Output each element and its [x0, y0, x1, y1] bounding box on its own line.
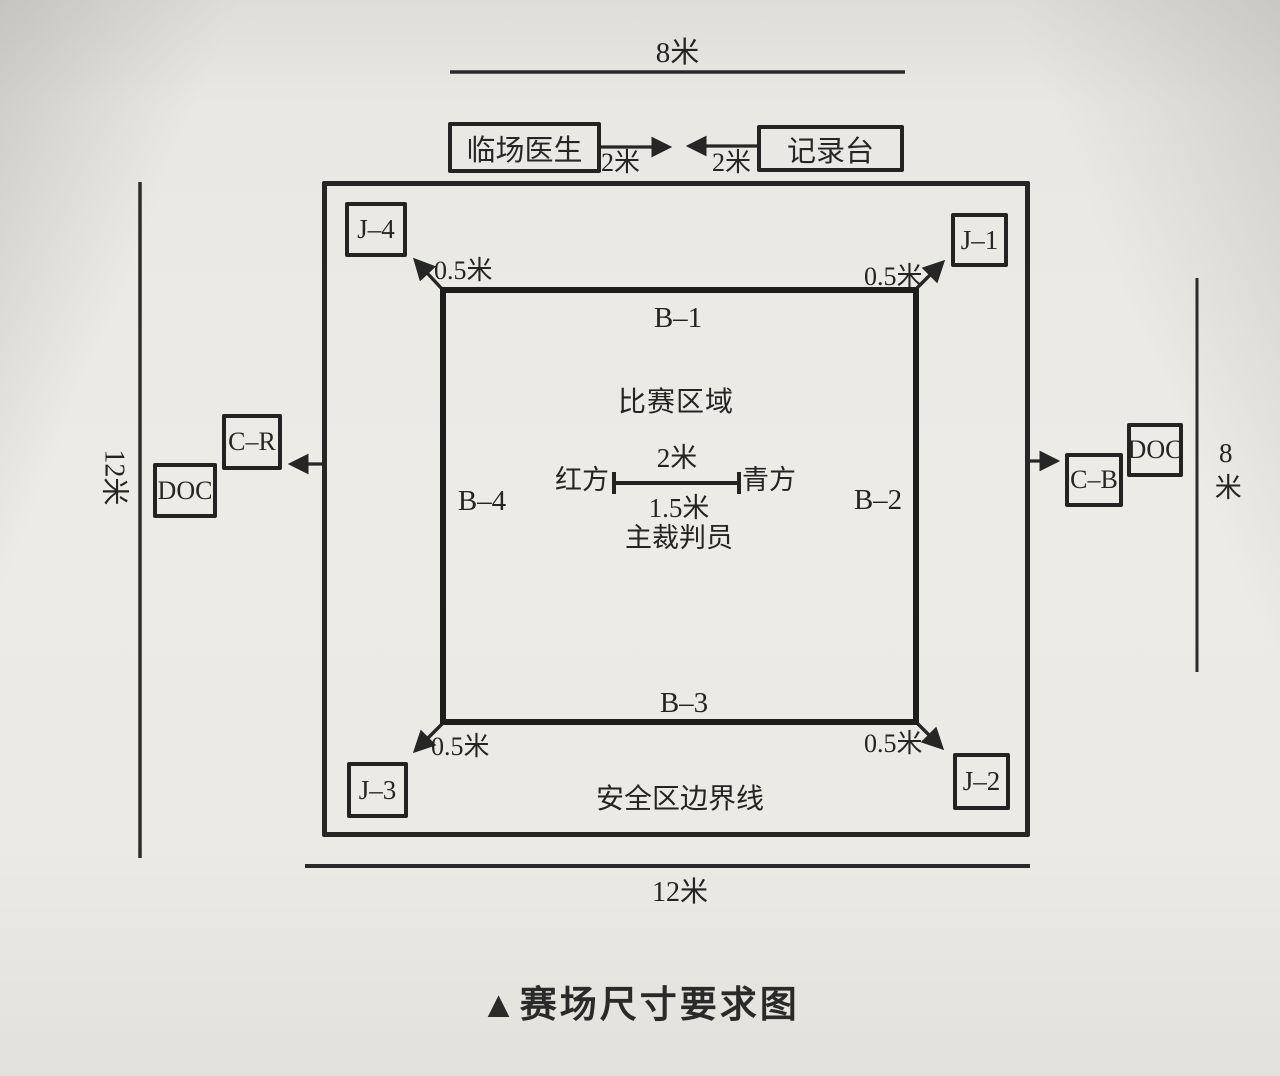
corner-offset-bottom-left-label: 0.5米: [431, 733, 490, 762]
blue-side-label: 青方: [742, 466, 796, 496]
right-height-dimension-label: 8米: [1210, 438, 1240, 505]
judge-j3-label: J–3: [359, 775, 397, 806]
referee-distance-label: 1.5米: [629, 494, 729, 524]
red-side-label: 红方: [555, 466, 609, 496]
left-height-dimension-label: 12米: [98, 441, 129, 513]
doctor-left-label: DOC: [158, 476, 213, 506]
doctor-right-label: DOC: [1128, 435, 1183, 465]
boundary-b3-label: B–3: [644, 688, 724, 720]
gap-right-label: 2米: [712, 149, 751, 178]
judge-box-j2: J–2: [953, 753, 1010, 810]
top-width-dimension-label: 8米: [620, 38, 735, 70]
boundary-b4-label: B–4: [444, 486, 520, 518]
boundary-b2-label: B–2: [840, 485, 916, 517]
figure-caption: ▲赛场尺寸要求图: [0, 974, 1280, 1028]
recorder-desk-label: 记录台: [787, 128, 874, 170]
corner-offset-bottom-right-label: 0.5米: [864, 730, 923, 759]
coach-blue-label: C–B: [1070, 465, 1118, 495]
ringside-doctor-label: 临场医生: [466, 127, 582, 169]
center-length-label: 2米: [637, 444, 717, 474]
competition-area-label: 比赛区域: [592, 388, 760, 419]
ringside-doctor-box: 临场医生: [448, 122, 601, 173]
safety-boundary-label: 安全区边界线: [590, 785, 770, 816]
judge-j1-label: J–1: [961, 225, 999, 256]
judge-box-j4: J–4: [345, 202, 407, 257]
judge-j4-label: J–4: [357, 214, 395, 245]
diagram-page: 8米 临场医生 记录台 2米 2米 J–4 J–1 J–3 J–2 0.5米 0…: [0, 0, 1280, 1076]
bottom-width-dimension-label: 12米: [630, 878, 730, 909]
gap-left-label: 2米: [601, 149, 640, 178]
doctor-left-box: DOC: [153, 463, 217, 518]
coach-red-label: C–R: [228, 427, 276, 457]
judge-box-j1: J–1: [951, 213, 1008, 267]
corner-offset-top-left-label: 0.5米: [434, 257, 493, 286]
referee-label: 主裁判员: [616, 524, 742, 554]
coach-blue-box: C–B: [1065, 453, 1123, 507]
judge-j2-label: J–2: [963, 766, 1001, 797]
corner-offset-top-right-label: 0.5米: [864, 263, 923, 292]
boundary-b1-label: B–1: [638, 303, 718, 335]
judge-box-j3: J–3: [347, 762, 408, 818]
recorder-desk-box: 记录台: [757, 125, 904, 172]
coach-red-box: C–R: [222, 414, 282, 470]
doctor-right-box: DOC: [1127, 423, 1183, 477]
